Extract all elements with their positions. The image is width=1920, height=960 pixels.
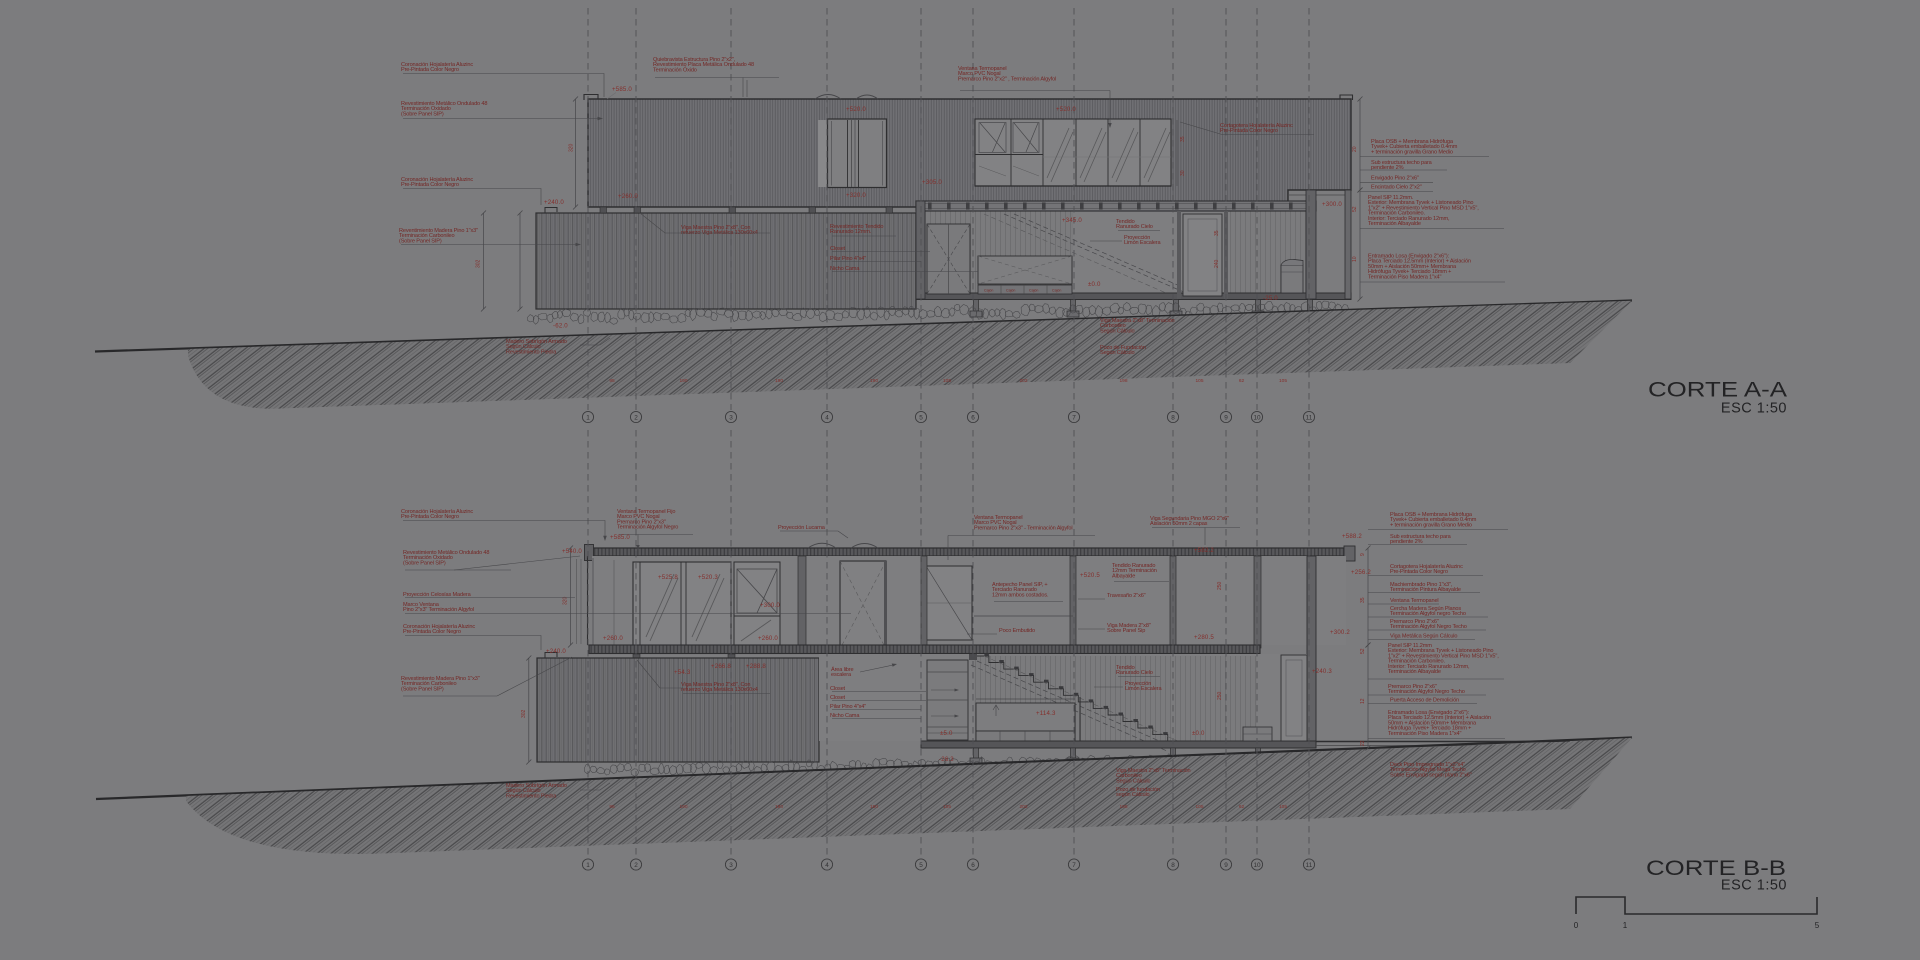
svg-text:Travesaño 2"x6": Travesaño 2"x6" bbox=[1107, 593, 1146, 599]
svg-text:52: 52 bbox=[1352, 206, 1358, 212]
svg-text:198: 198 bbox=[1119, 378, 1127, 384]
svg-text:22: 22 bbox=[1360, 740, 1366, 746]
svg-text:Viga Maestra Pino 2"x8", Conre: Viga Maestra Pino 2"x8", Conrefuerzo Vig… bbox=[681, 682, 758, 693]
svg-text:52: 52 bbox=[1360, 648, 1366, 654]
svg-text:Machiembrado Pino 1"x3",Termin: Machiembrado Pino 1"x3",Terminación Pint… bbox=[1390, 582, 1461, 593]
svg-text:190: 190 bbox=[870, 378, 878, 384]
svg-text:20: 20 bbox=[1352, 146, 1358, 152]
svg-text:Nicho Cama: Nicho Cama bbox=[830, 713, 860, 719]
svg-text:3: 3 bbox=[729, 862, 733, 869]
svg-text:Viga Madera 2"x8"Sobre Panel S: Viga Madera 2"x8"Sobre Panel Sip bbox=[1107, 623, 1151, 634]
svg-text:5: 5 bbox=[919, 862, 923, 869]
svg-text:CORTE A-A: CORTE A-A bbox=[1648, 379, 1787, 402]
svg-text:ESC 1:50: ESC 1:50 bbox=[1721, 878, 1787, 894]
svg-text:10: 10 bbox=[1253, 862, 1261, 869]
svg-text:Pilar Pino 4"x4": Pilar Pino 4"x4" bbox=[830, 704, 866, 710]
svg-text:1: 1 bbox=[1623, 921, 1628, 930]
svg-text:Closet: Closet bbox=[830, 686, 846, 692]
svg-text:Puerta Acceso de Demolición: Puerta Acceso de Demolición bbox=[1390, 698, 1459, 704]
svg-text:+256.2: +256.2 bbox=[1351, 569, 1371, 576]
svg-text:+585.0: +585.0 bbox=[612, 86, 632, 93]
svg-text:9: 9 bbox=[1360, 553, 1366, 556]
svg-text:+300.0: +300.0 bbox=[760, 602, 780, 609]
svg-text:95: 95 bbox=[609, 378, 615, 384]
svg-text:Closet: Closet bbox=[830, 246, 846, 252]
svg-text:Pilar Pino 4"x4": Pilar Pino 4"x4" bbox=[830, 256, 866, 262]
svg-text:11: 11 bbox=[1306, 414, 1313, 421]
svg-text:302: 302 bbox=[521, 709, 527, 718]
svg-text:+345.0: +345.0 bbox=[1062, 217, 1082, 224]
svg-text:190: 190 bbox=[775, 804, 783, 810]
svg-text:6: 6 bbox=[971, 862, 975, 869]
svg-text:190: 190 bbox=[775, 378, 783, 384]
svg-text:240: 240 bbox=[1214, 259, 1220, 268]
svg-text:Cajón: Cajón bbox=[984, 289, 993, 293]
svg-text:105: 105 bbox=[1195, 804, 1203, 810]
svg-text:+300.0: +300.0 bbox=[1322, 201, 1342, 208]
svg-text:Closet: Closet bbox=[830, 695, 846, 701]
svg-text:2: 2 bbox=[634, 414, 638, 421]
svg-text:+520.0: +520.0 bbox=[1056, 106, 1076, 113]
svg-text:+540.0: +540.0 bbox=[562, 548, 582, 555]
svg-text:+585.0: +585.0 bbox=[610, 534, 630, 541]
svg-text:Poco Embutido: Poco Embutido bbox=[999, 628, 1035, 634]
svg-text:+266.8: +266.8 bbox=[711, 663, 731, 670]
svg-text:Envigado Pino 2"x6": Envigado Pino 2"x6" bbox=[1371, 176, 1419, 182]
svg-text:-26.3: -26.3 bbox=[939, 756, 954, 763]
svg-text:10: 10 bbox=[1253, 414, 1261, 421]
svg-text:202: 202 bbox=[1019, 378, 1027, 384]
svg-text:4: 4 bbox=[825, 414, 829, 421]
svg-text:8: 8 bbox=[1171, 414, 1175, 421]
svg-text:5: 5 bbox=[1815, 921, 1820, 930]
svg-text:+280.5: +280.5 bbox=[1194, 634, 1214, 641]
svg-text:Cajón: Cajón bbox=[1029, 289, 1038, 293]
svg-text:320: 320 bbox=[569, 143, 575, 152]
svg-text:+260.0: +260.0 bbox=[603, 635, 623, 642]
svg-text:+288.8: +288.8 bbox=[746, 663, 766, 670]
svg-text:105: 105 bbox=[1195, 378, 1203, 384]
svg-text:+114.3: +114.3 bbox=[1036, 710, 1056, 717]
svg-text:+54.3: +54.3 bbox=[674, 669, 691, 676]
svg-text:10: 10 bbox=[1352, 256, 1358, 262]
svg-text:190: 190 bbox=[870, 804, 878, 810]
svg-text:+260.0: +260.0 bbox=[758, 635, 778, 642]
svg-text:+240.0: +240.0 bbox=[546, 648, 566, 655]
svg-text:±5.0: ±5.0 bbox=[940, 730, 953, 737]
svg-text:11: 11 bbox=[1306, 862, 1313, 869]
svg-text:±0.0: ±0.0 bbox=[1088, 281, 1101, 288]
svg-text:Encintado Cielo 2"x2": Encintado Cielo 2"x2" bbox=[1371, 185, 1422, 191]
svg-text:9: 9 bbox=[1224, 414, 1228, 421]
svg-text:Nicho Cama: Nicho Cama bbox=[830, 266, 860, 272]
svg-text:12: 12 bbox=[1360, 698, 1366, 704]
svg-text:1: 1 bbox=[586, 862, 590, 869]
svg-text:-25.0: -25.0 bbox=[1263, 295, 1278, 302]
svg-text:Placa OSB + Membrana Hidrófuga: Placa OSB + Membrana HidrófugaTyvek+ Cub… bbox=[1371, 139, 1458, 155]
svg-text:2: 2 bbox=[634, 862, 638, 869]
svg-text:62: 62 bbox=[1239, 804, 1245, 810]
svg-text:+320.0: +320.0 bbox=[846, 192, 866, 199]
svg-text:302: 302 bbox=[476, 259, 482, 268]
svg-text:+240.0: +240.0 bbox=[544, 199, 564, 206]
svg-text:190: 190 bbox=[679, 378, 687, 384]
svg-text:+305.0: +305.0 bbox=[922, 179, 942, 186]
svg-text:+520.3: +520.3 bbox=[698, 574, 718, 581]
svg-text:62: 62 bbox=[1239, 378, 1245, 384]
svg-text:-62.0: -62.0 bbox=[553, 323, 568, 330]
svg-text:35: 35 bbox=[1214, 230, 1220, 236]
svg-text:Proyección Celosías Madera: Proyección Celosías Madera bbox=[403, 592, 472, 598]
svg-text:7: 7 bbox=[1072, 414, 1076, 421]
svg-text:105: 105 bbox=[1279, 378, 1287, 384]
svg-text:±0.0: ±0.0 bbox=[1192, 730, 1205, 737]
svg-text:8: 8 bbox=[1171, 862, 1175, 869]
svg-text:250: 250 bbox=[1217, 691, 1223, 700]
svg-text:1: 1 bbox=[586, 414, 590, 421]
svg-text:4: 4 bbox=[825, 862, 829, 869]
svg-text:6: 6 bbox=[971, 414, 975, 421]
svg-text:Cajón: Cajón bbox=[1006, 289, 1015, 293]
svg-text:Proyección Lucarna: Proyección Lucarna bbox=[778, 525, 826, 531]
svg-text:+520.5: +520.5 bbox=[1080, 572, 1100, 579]
svg-text:+240.3: +240.3 bbox=[1312, 668, 1332, 675]
svg-text:ESC 1:50: ESC 1:50 bbox=[1721, 401, 1787, 417]
svg-text:Deck Pino Impregnado 1"x2"x4"T: Deck Pino Impregnado 1"x2"x4"Terminación… bbox=[1390, 762, 1472, 778]
svg-text:35: 35 bbox=[1360, 597, 1366, 603]
svg-text:Placa OSB + Membrana Hidrófuga: Placa OSB + Membrana HidrófugaTyvek+ Cub… bbox=[1390, 512, 1477, 528]
svg-text:Área libreescalera: Área libreescalera bbox=[831, 666, 853, 678]
svg-text:105: 105 bbox=[943, 804, 951, 810]
svg-text:5: 5 bbox=[919, 414, 923, 421]
svg-text:Ventana Termopanel: Ventana Termopanel bbox=[1390, 598, 1439, 604]
svg-text:30: 30 bbox=[1180, 170, 1186, 176]
svg-text:Cercha Madera Según PlanosTerm: Cercha Madera Según PlanosTerminación Al… bbox=[1390, 606, 1466, 617]
svg-text:Viga Maestra Pino 2"x8", Conre: Viga Maestra Pino 2"x8", Conrefuerzo Vig… bbox=[681, 225, 758, 236]
svg-text:105: 105 bbox=[1279, 804, 1287, 810]
svg-text:95: 95 bbox=[609, 804, 615, 810]
svg-text:7: 7 bbox=[1072, 862, 1076, 869]
svg-text:0: 0 bbox=[1574, 921, 1579, 930]
svg-text:+582.2: +582.2 bbox=[1194, 547, 1214, 554]
svg-text:250: 250 bbox=[1217, 581, 1223, 590]
svg-text:3: 3 bbox=[729, 414, 733, 421]
svg-text:202: 202 bbox=[1019, 804, 1027, 810]
svg-text:35: 35 bbox=[1180, 136, 1186, 142]
svg-text:198: 198 bbox=[1119, 804, 1127, 810]
svg-text:9: 9 bbox=[1224, 862, 1228, 869]
svg-text:+260.0: +260.0 bbox=[618, 193, 638, 200]
svg-text:+588.2: +588.2 bbox=[1342, 533, 1362, 540]
svg-text:105: 105 bbox=[943, 378, 951, 384]
svg-text:Cajón: Cajón bbox=[1052, 289, 1061, 293]
svg-text:190: 190 bbox=[679, 804, 687, 810]
svg-text:+300.2: +300.2 bbox=[1330, 629, 1350, 636]
svg-text:+520.0: +520.0 bbox=[846, 106, 866, 113]
svg-text:+525.8: +525.8 bbox=[658, 574, 678, 581]
svg-text:Viga Metálica Según Cálculo: Viga Metálica Según Cálculo bbox=[1390, 634, 1457, 640]
